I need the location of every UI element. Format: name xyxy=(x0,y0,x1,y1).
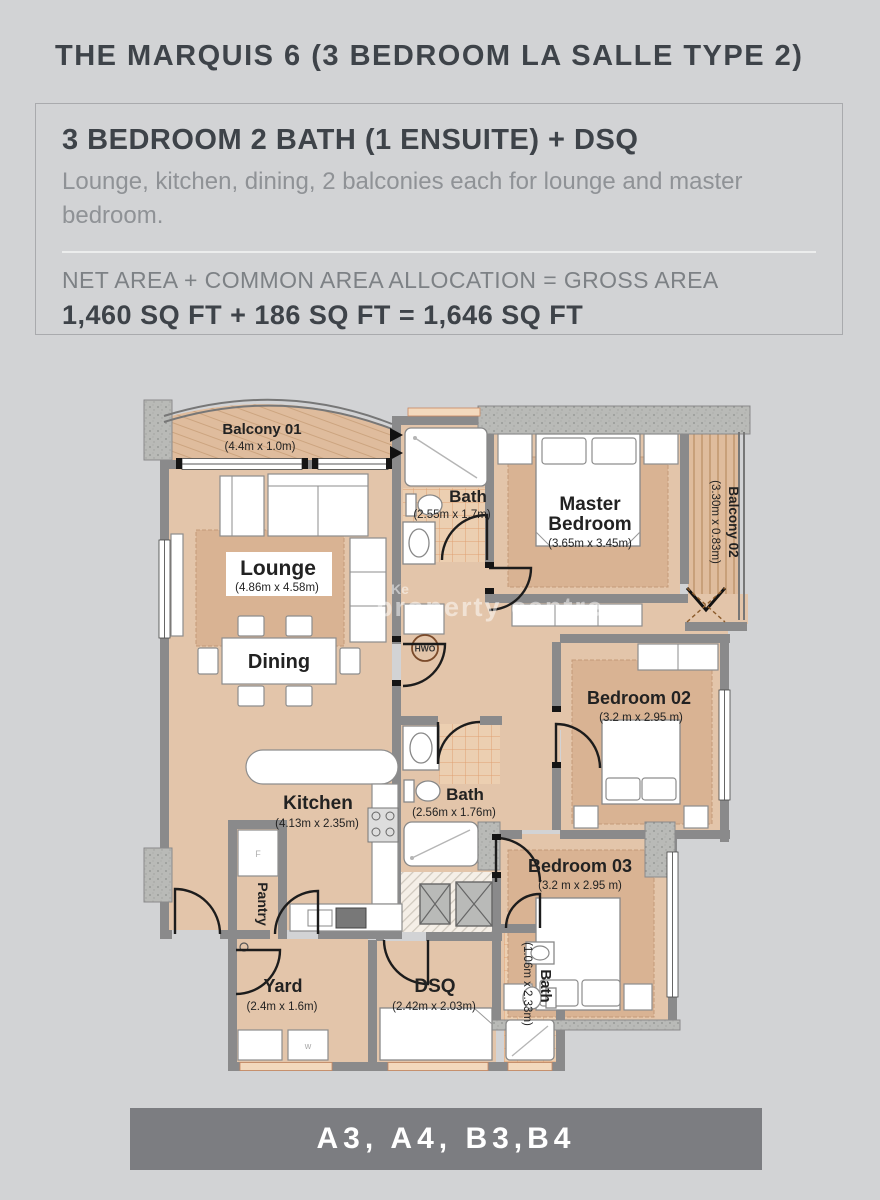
dining-chair xyxy=(238,686,264,706)
yard-dims: (2.4m x 1.6m) xyxy=(247,1001,318,1013)
pillow xyxy=(642,778,676,800)
dsq-dims: (2.42m x 2.03m) xyxy=(392,1001,476,1013)
bedroom03-label: Bedroom 03 xyxy=(528,856,632,876)
lounge-dims: (4.86m x 4.58m) xyxy=(235,582,319,594)
dsq-bed xyxy=(380,1008,492,1060)
toilet-tank xyxy=(404,780,414,802)
dining-chair xyxy=(198,648,218,674)
pantry-label: Pantry xyxy=(255,882,271,926)
concrete-column-topleft xyxy=(144,400,172,460)
stove xyxy=(368,808,398,842)
kitchen-dims: (4.13m x 2.35m) xyxy=(275,818,359,830)
nightstand xyxy=(644,434,678,464)
balcony01-dims: (4.4m x 1.0m) xyxy=(225,441,296,453)
nightstand xyxy=(574,806,598,828)
floor-plan-svg: HWO Balcony 01 (4.4m x 1.0m) Lounge xyxy=(140,372,762,1098)
yard-appliance xyxy=(238,1030,282,1060)
main-bath-label: Bath xyxy=(446,785,484,804)
pillow xyxy=(582,980,620,1006)
nightstand xyxy=(498,434,532,464)
bedroom02-label: Bedroom 02 xyxy=(587,688,691,708)
page-title: THE MARQUIS 6 (3 BEDROOM LA SALLE TYPE 2… xyxy=(55,40,845,73)
washer-label: w xyxy=(304,1041,312,1051)
corridor-down-floor xyxy=(492,724,560,830)
master-label-line2: Bedroom xyxy=(548,514,631,535)
area-formula: NET AREA + COMMON AREA ALLOCATION = GROS… xyxy=(62,267,816,294)
window-seat xyxy=(171,534,183,636)
fridge-label: F xyxy=(255,849,261,859)
concrete-band-top xyxy=(478,406,750,434)
tv-unit xyxy=(350,538,386,642)
dining-chair xyxy=(340,648,360,674)
area-values: 1,460 SQ FT + 186 SQ FT = 1,646 SQ FT xyxy=(62,300,816,331)
pillow xyxy=(592,438,636,464)
main-bath-tile xyxy=(439,724,500,784)
nightstand xyxy=(624,984,652,1010)
dsq-shower xyxy=(506,1020,554,1060)
main-bath-dims: (2.56m x 1.76m) xyxy=(412,807,496,819)
unit-codes-bar: A3, A4, B3,B4 xyxy=(130,1108,762,1170)
bedroom02-dims: (3.2 m x 2.95 m) xyxy=(599,712,683,724)
summary-divider xyxy=(62,251,816,253)
toilet-bowl xyxy=(416,781,440,801)
unit-codes-label: A3, A4, B3,B4 xyxy=(317,1122,576,1156)
floor-plan: HWO Balcony 01 (4.4m x 1.0m) Lounge xyxy=(140,372,762,1098)
dsq-bath-dims: (1.06m x 2.33m) xyxy=(521,942,533,1026)
dining-chair xyxy=(238,616,264,636)
dsq-bath-label: Bath xyxy=(537,969,554,1002)
kitchen-counter xyxy=(246,750,398,784)
service-shaft xyxy=(420,882,492,926)
ensuite-bath-dims: (2.55m x 1.7m) xyxy=(413,509,490,521)
yard-label: Yard xyxy=(263,976,302,996)
balcony02-dims: (3.30m x 0.83m) xyxy=(709,480,721,564)
kitchen-sink xyxy=(336,908,366,928)
concrete-column-left xyxy=(144,848,172,902)
balcony02-label: Balcony 02 xyxy=(726,486,741,557)
ensuite-bath-label: Bath xyxy=(449,487,487,506)
summary-box: 3 BEDROOM 2 BATH (1 ENSUITE) + DSQ Loung… xyxy=(35,103,843,335)
kitchen-sink-basin xyxy=(308,910,332,926)
dsq-label: DSQ xyxy=(414,976,455,997)
dining-chair xyxy=(286,616,312,636)
watermark-main: property centre xyxy=(376,592,604,622)
summary-heading: 3 BEDROOM 2 BATH (1 ENSUITE) + DSQ xyxy=(62,124,816,157)
balcony01-label: Balcony 01 xyxy=(222,421,301,438)
master-dims: (3.65m x 3.45m) xyxy=(548,538,632,550)
dining-label: Dining xyxy=(248,651,310,673)
summary-description: Lounge, kitchen, dining, 2 balconies eac… xyxy=(62,165,782,233)
pillow xyxy=(542,438,586,464)
bedroom03-dims: (3.2 m x 2.95 m) xyxy=(538,880,622,892)
master-label-line1: Master xyxy=(559,494,621,515)
dining-chair xyxy=(286,686,312,706)
kitchen-label: Kitchen xyxy=(283,793,353,814)
pillow xyxy=(606,778,640,800)
basin-counter xyxy=(403,522,435,564)
lounge-label: Lounge xyxy=(240,557,316,580)
nightstand xyxy=(684,806,708,828)
kitchen-counter-side xyxy=(372,784,398,904)
sofa-small xyxy=(220,476,264,536)
